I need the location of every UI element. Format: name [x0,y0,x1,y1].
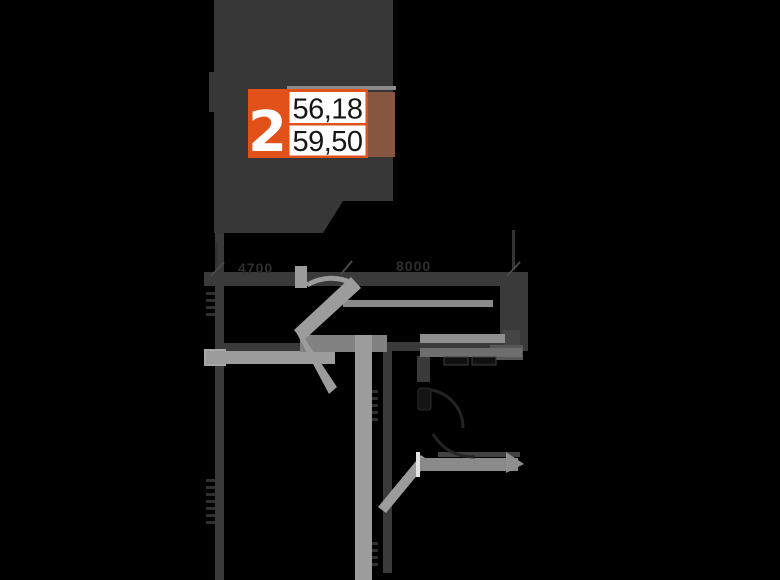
badge-area-bottom: 59,50 [292,126,362,158]
hatch [372,404,378,407]
unit-divider-line [343,300,493,307]
stair-landing [300,335,387,352]
dimension-label-1: 4700 [238,260,273,276]
door-leaf [295,266,307,288]
stove-fixture-2 [472,357,496,365]
badge-tail [368,92,395,157]
hatch [206,313,215,316]
hatch [206,306,215,309]
hatch [372,418,378,421]
hatch [206,292,215,295]
shaft-bar [355,335,372,580]
kitchen-lower-bar [420,348,522,357]
wall-mid-vertical [383,351,392,573]
hatch [206,514,215,517]
hatch [206,500,215,503]
lower-gray-bar [420,458,518,471]
hatch [206,507,215,510]
hatch [372,556,378,559]
dim-extension-left [215,242,218,270]
badge-area-top: 56,18 [292,94,362,126]
apartment-badge[interactable]: 2 56,18 59,50 [248,86,396,165]
hatch [206,299,215,302]
badge-room-count: 2 [248,100,287,165]
dim-extension-right [512,230,515,270]
floor-plan-canvas: 4700 8000 2 56,18 59,50 [0,0,780,580]
wall-entry-block [503,330,520,345]
wall-mid-left [215,343,307,352]
stove-fixture-1 [444,357,468,365]
hatch [372,390,378,393]
hatch [372,397,378,400]
white-tick [416,452,420,477]
kitchen-upper-bar [420,334,505,343]
hatch [206,521,215,524]
hatch [372,549,378,552]
hatch [206,479,215,482]
dimension-label-2: 8000 [396,258,431,274]
toilet-fixture [418,388,431,410]
hatch [372,563,378,566]
apartment-shape-notch [209,72,215,112]
hatch [206,486,215,489]
hatch [206,493,215,496]
hatch [372,542,378,545]
wall-left [215,233,224,580]
wall-bath [417,356,430,382]
floorplan-screen: 4700 8000 2 56,18 59,50 [0,0,780,580]
hatch [372,411,378,414]
